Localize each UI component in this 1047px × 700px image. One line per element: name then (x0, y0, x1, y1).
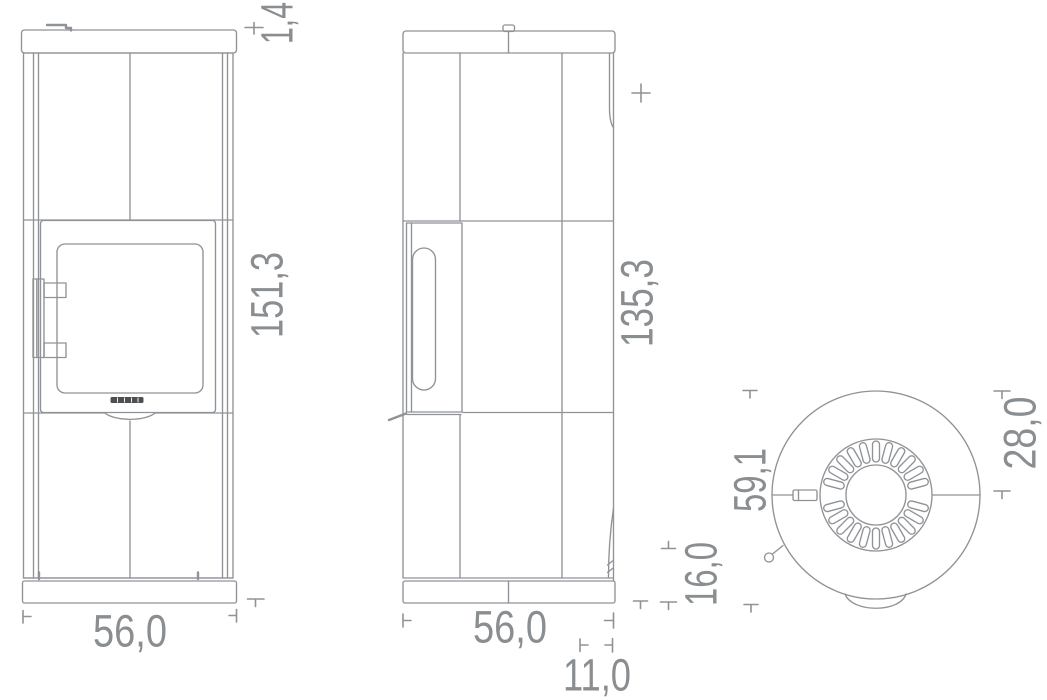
side-panel-seams (460, 53, 562, 578)
side-view (389, 25, 615, 603)
front-base (23, 581, 237, 603)
grille-slot (835, 516, 855, 536)
grille-slot (897, 516, 917, 536)
top-grille-ring (820, 439, 932, 551)
front-body (24, 53, 234, 578)
side-door-handle (413, 248, 436, 390)
front-view (22, 25, 237, 603)
tick-front-width-left (23, 611, 31, 624)
tick-top-depth-bottom (744, 605, 758, 613)
tick-side-width-left (403, 614, 411, 627)
dim-side-lower: 16,0 (676, 542, 727, 606)
tick-front-width-right (229, 610, 237, 623)
tick-side-height-bottom (634, 601, 648, 609)
front-top-plate (22, 30, 237, 53)
top-door-key-stem (773, 546, 784, 555)
tick-front-height-bottom (248, 599, 265, 607)
top-handle-rod (793, 490, 817, 501)
side-back-curve-bottom (609, 508, 614, 577)
dim-top-depth: 59,1 (725, 448, 776, 512)
dim-front-width: 56,0 (93, 606, 167, 657)
tick-side-width-right (605, 613, 614, 628)
grille-slot (873, 441, 880, 462)
tick-top-depth-top (743, 391, 757, 399)
dim-top-rear: 28,0 (995, 397, 1046, 470)
dim-side-height: 135,3 (612, 259, 663, 347)
dim-side-width: 56,0 (473, 602, 547, 653)
grille-slot (835, 454, 855, 474)
dim-front-top: 1,4 (252, 2, 303, 44)
drawing-canvas: 151,3 1,4 56,0 135,3 56,0 11,0 16,0 59,1… (0, 0, 1047, 700)
dimension-ticks (23, 23, 1010, 653)
front-door-glass (57, 244, 203, 393)
grille-slot (897, 454, 917, 474)
dim-side-offset: 11,0 (563, 650, 631, 700)
top-view (765, 391, 981, 608)
tick-side-height-top-cross (632, 84, 650, 102)
grille-slot (873, 528, 880, 549)
stove-technical-drawing: 151,3 1,4 56,0 135,3 56,0 11,0 16,0 59,1… (0, 0, 1047, 700)
dim-front-height: 151,3 (242, 252, 293, 338)
front-door (41, 221, 216, 413)
front-door-bottom-arc (105, 413, 155, 419)
tick-side-lower-top (662, 542, 676, 549)
side-body-outline (403, 53, 614, 581)
brand-logo (111, 397, 144, 403)
tick-side-lower-bottom (661, 602, 677, 610)
top-flue-opening (846, 465, 906, 525)
top-grille-slots (823, 441, 929, 549)
side-back-curve-top (610, 53, 614, 127)
tick-top-rear-bottom (994, 491, 1010, 499)
